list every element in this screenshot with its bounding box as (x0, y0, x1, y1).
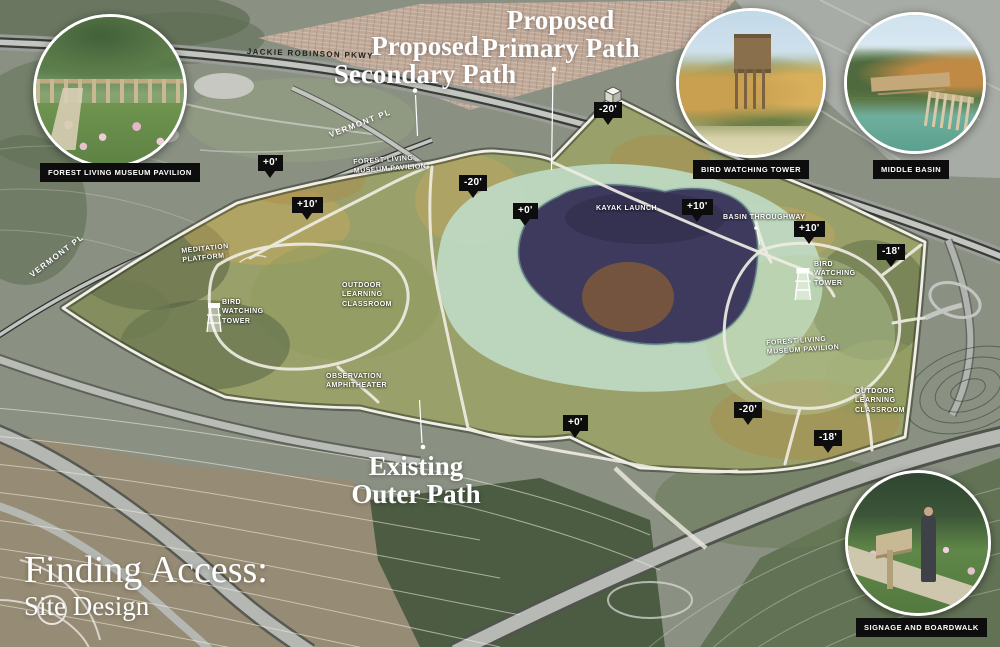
annotation-proposed-primary-path: Proposed Primary Path (468, 6, 653, 62)
site-design-map: FOREST LIVING MUSEUM PAVILION BIRD WATCH… (0, 0, 1000, 647)
elevation-value: +0' (263, 157, 278, 168)
elevation-value: +0' (518, 205, 533, 216)
elevation-value: -18' (882, 246, 900, 257)
elevation-value: -20' (599, 104, 617, 115)
pavilion-structure (36, 79, 184, 103)
inset-label-middle-basin: MIDDLE BASIN (873, 160, 949, 179)
label-kayak-launch: KAYAK LAUNCH (596, 204, 657, 213)
tower-legs (735, 69, 770, 109)
elevation-marker: +10' (292, 197, 323, 213)
tree-canopy (33, 14, 187, 82)
wooden-tower (734, 34, 771, 73)
elevation-marker: +0' (563, 415, 588, 431)
elevation-value: -20' (464, 177, 482, 188)
inset-label-bird-watching-tower: BIRD WATCHING TOWER (693, 160, 809, 179)
elevation-value: +0' (568, 417, 583, 428)
title-line-1: Finding Access: (24, 549, 268, 592)
elevation-marker: -20' (459, 175, 487, 191)
person-head (924, 507, 932, 517)
elevation-marker: -20' (594, 102, 622, 118)
sign-post (887, 550, 893, 589)
elevation-value: +10' (297, 199, 318, 210)
elevation-marker: -20' (734, 402, 762, 418)
inset-photo-bird-watching-tower (676, 8, 826, 158)
inset-label-forest-living-museum-pavilion: FOREST LIVING MUSEUM PAVILION (40, 163, 200, 182)
bird-tower-icon (207, 303, 221, 332)
label-outdoor-learning-classroom-west: OUTDOOR LEARNING CLASSROOM (342, 281, 392, 309)
annotation-existing-outer-path: Existing Outer Path (332, 452, 500, 508)
inset-photo-signage-and-boardwalk (845, 470, 991, 616)
elevation-marker: +0' (258, 155, 283, 171)
elevation-marker: +0' (513, 203, 538, 219)
inset-photo-forest-living-museum-pavilion (33, 14, 187, 168)
elevation-marker: -18' (814, 430, 842, 446)
autumn-trees (844, 45, 986, 97)
label-observation-amphitheater: OBSERVATION AMPHITHEATER (326, 372, 387, 391)
elevation-value: -20' (739, 404, 757, 415)
bird-tower-icon (795, 268, 810, 300)
inset-label-signage-and-boardwalk: SIGNAGE AND BOARDWALK (856, 618, 987, 637)
title-line-2: Site Design (24, 592, 268, 620)
elevation-marker: -18' (877, 244, 905, 260)
person-figure (921, 515, 936, 582)
inset-photo-middle-basin (844, 12, 986, 154)
label-bird-watching-tower-west: BIRD WATCHING TOWER (222, 298, 264, 326)
boardwalk-rail (924, 91, 975, 132)
elevation-value: -18' (819, 432, 837, 443)
elevation-marker: +10' (682, 199, 713, 215)
label-bird-watching-tower-east: BIRD WATCHING TOWER (814, 260, 856, 288)
elevation-value: +10' (687, 201, 708, 212)
elevation-value: +10' (799, 223, 820, 234)
elevation-marker: +10' (794, 221, 825, 237)
label-outdoor-learning-classroom-east: OUTDOOR LEARNING CLASSROOM (855, 387, 905, 415)
page-title: Finding Access: Site Design (24, 549, 268, 620)
